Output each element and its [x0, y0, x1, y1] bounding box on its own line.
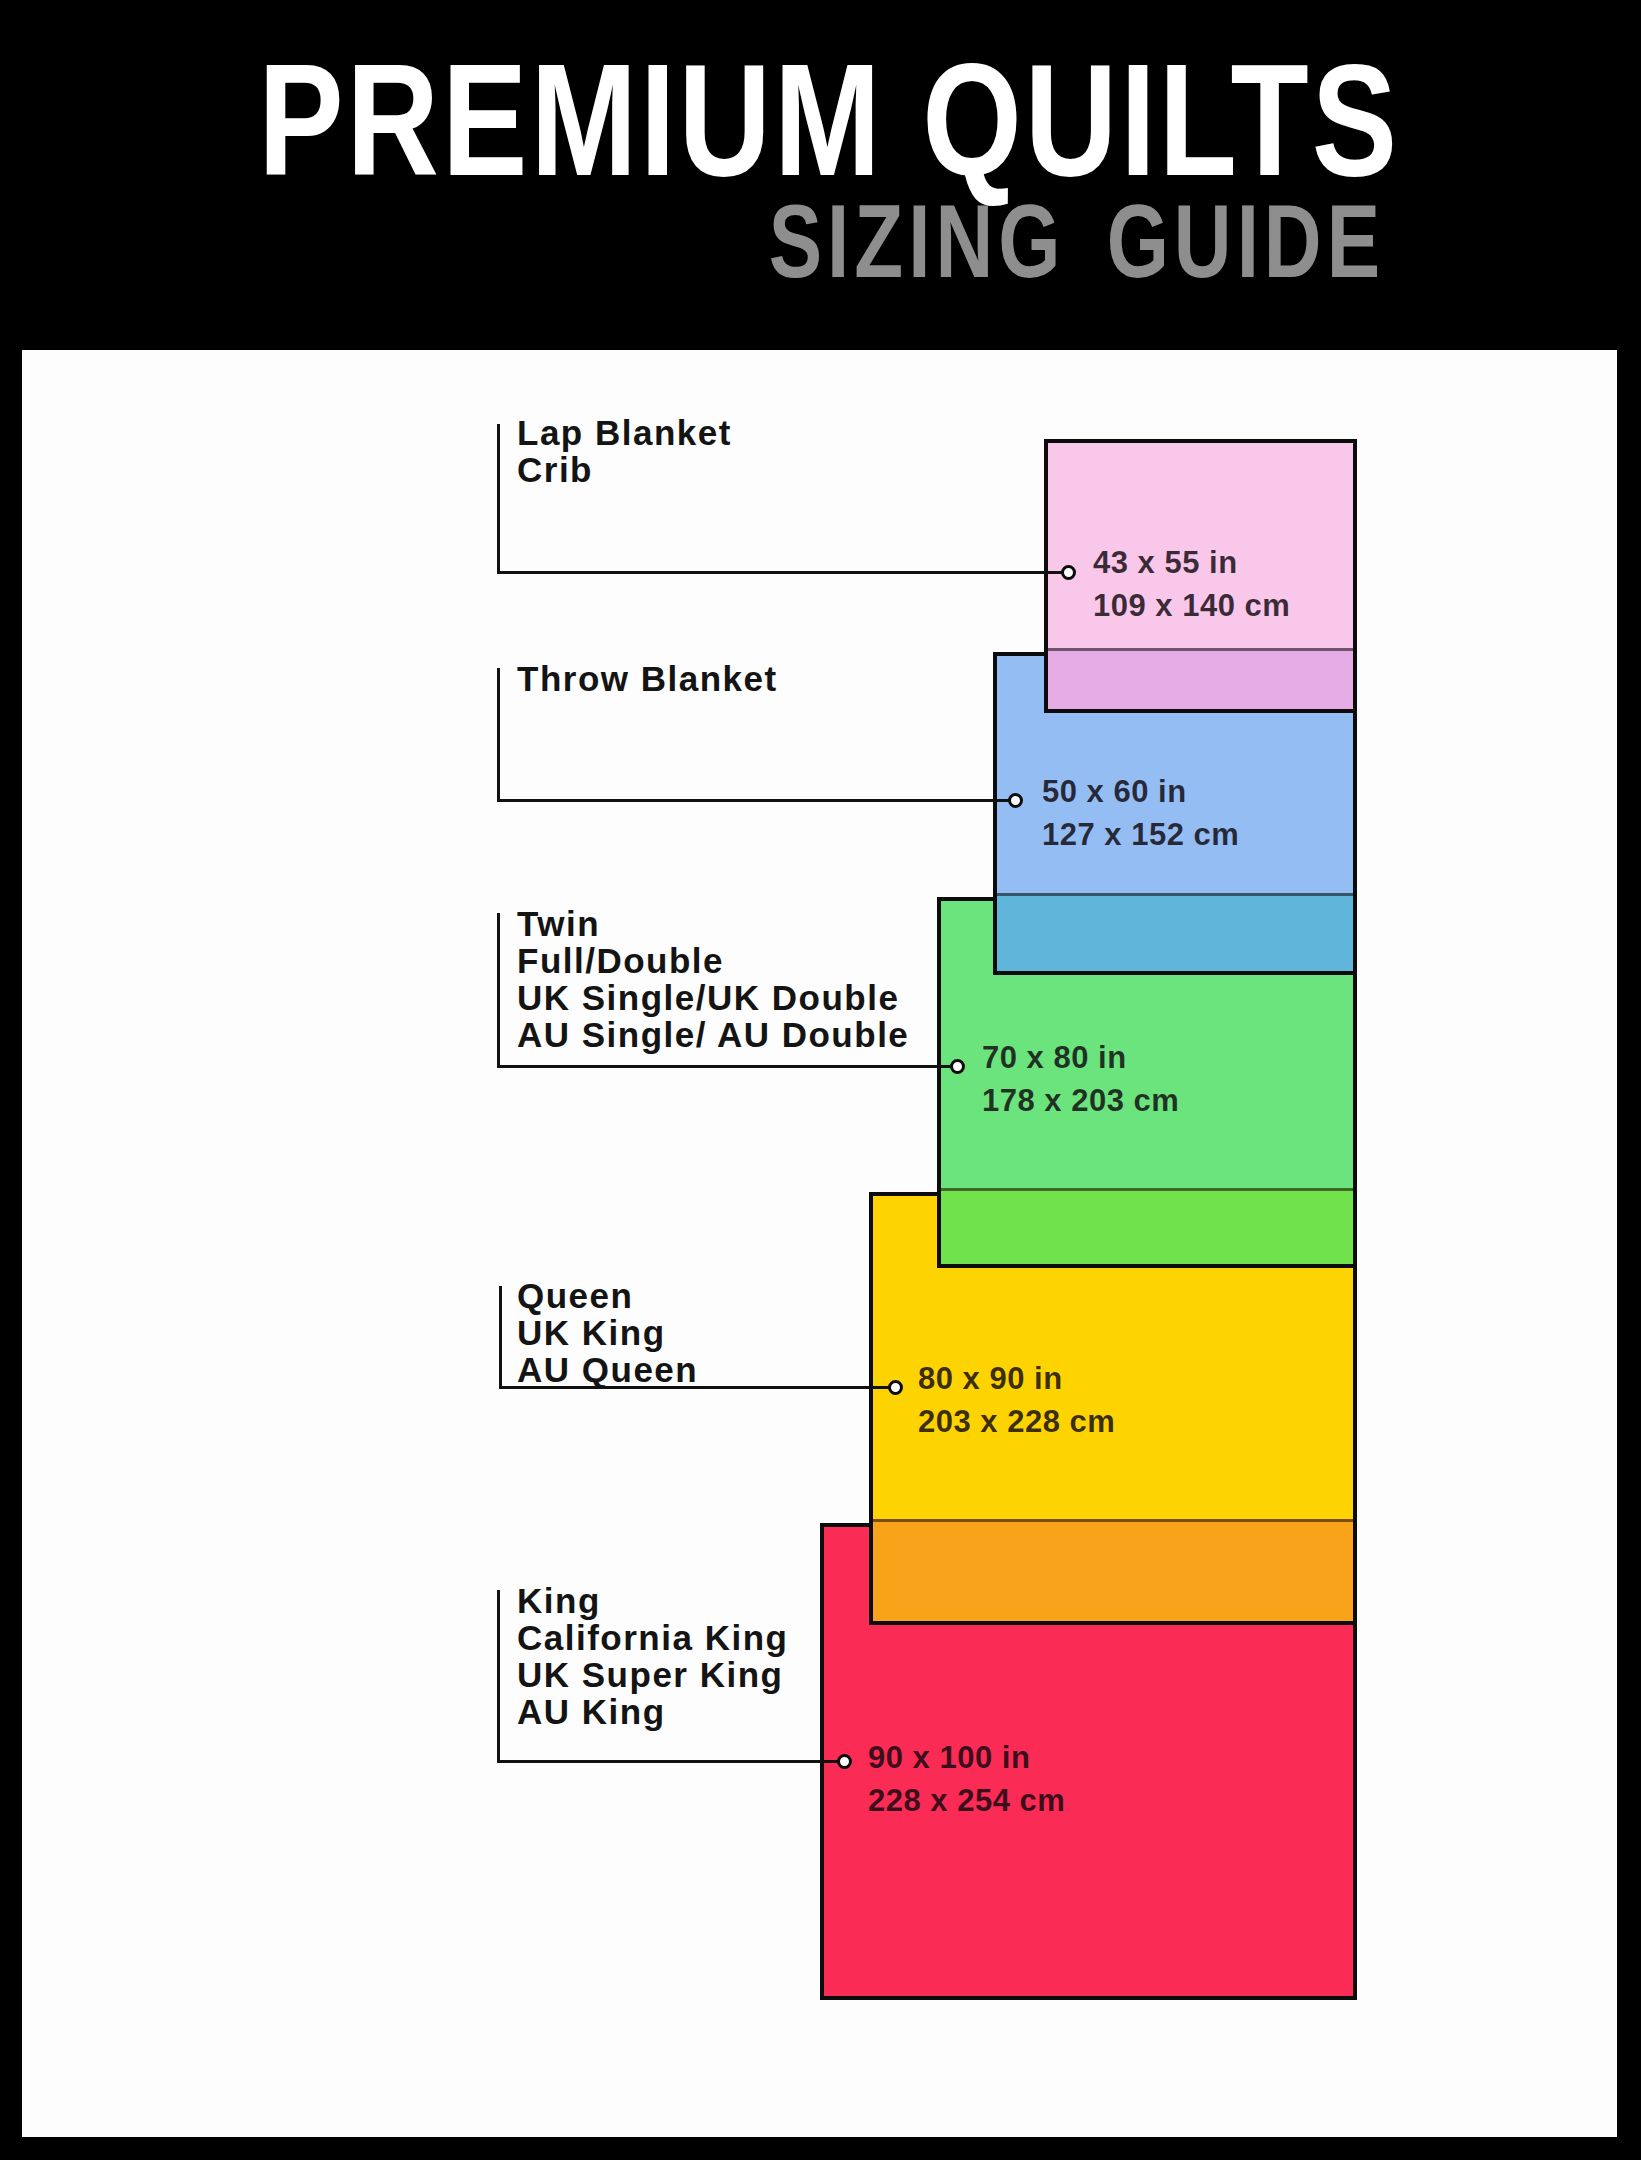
dims-queen-cm: 203 x 228 cm — [918, 1400, 1115, 1443]
page-title: PREMIUM QUILTS — [258, 40, 1400, 200]
dims-king-cm: 228 x 254 cm — [868, 1779, 1065, 1822]
callout-line-throw-v — [497, 668, 500, 802]
dims-twin-in: 70 x 80 in — [982, 1036, 1179, 1079]
callout-line-lap-crib-h — [497, 571, 1063, 574]
overlap-band-queen-over-king — [873, 1519, 1353, 1621]
callout-line-lap-crib-v — [497, 424, 500, 574]
overlap-band-throw-over-twin — [997, 893, 1353, 971]
callout-dot-throw — [1008, 793, 1023, 808]
dims-king-in: 90 x 100 in — [868, 1736, 1065, 1779]
dims-throw: 50 x 60 in 127 x 152 cm — [1042, 770, 1239, 856]
label-throw: Throw Blanket — [517, 660, 778, 697]
callout-line-twin-v — [497, 913, 500, 1068]
callout-dot-twin — [950, 1059, 965, 1074]
dims-king: 90 x 100 in 228 x 254 cm — [868, 1736, 1065, 1822]
dims-queen-in: 80 x 90 in — [918, 1357, 1115, 1400]
overlap-band-twin-over-queen — [941, 1188, 1353, 1264]
page-subtitle: SIZING GUIDE — [769, 190, 1385, 294]
dims-lap-crib-in: 43 x 55 in — [1093, 541, 1290, 584]
dims-throw-cm: 127 x 152 cm — [1042, 813, 1239, 856]
label-king: KingCalifornia KingUK Super KingAU King — [517, 1582, 788, 1730]
dims-lap-crib: 43 x 55 in 109 x 140 cm — [1093, 541, 1290, 627]
callout-dot-queen — [888, 1380, 903, 1395]
label-twin: TwinFull/DoubleUK Single/UK DoubleAU Sin… — [517, 905, 909, 1053]
callout-line-throw-h — [497, 799, 1010, 802]
callout-line-queen-h — [499, 1386, 890, 1389]
dims-lap-crib-cm: 109 x 140 cm — [1093, 584, 1290, 627]
dims-twin: 70 x 80 in 178 x 203 cm — [982, 1036, 1179, 1122]
dims-queen: 80 x 90 in 203 x 228 cm — [918, 1357, 1115, 1443]
infographic-canvas: PREMIUM QUILTS SIZING GUIDE 43 x 55 in 1… — [0, 0, 1641, 2160]
overlap-band-lap-over-throw — [1048, 648, 1353, 709]
callout-dot-lap-crib — [1061, 565, 1076, 580]
callout-line-twin-h — [497, 1065, 952, 1068]
callout-line-king-h — [497, 1760, 839, 1763]
label-queen: QueenUK KingAU Queen — [517, 1277, 698, 1388]
callout-dot-king — [837, 1754, 852, 1769]
dims-twin-cm: 178 x 203 cm — [982, 1079, 1179, 1122]
callout-line-queen-v — [499, 1286, 502, 1389]
dims-throw-in: 50 x 60 in — [1042, 770, 1239, 813]
label-lap-crib: Lap BlanketCrib — [517, 414, 732, 488]
callout-line-king-v — [497, 1590, 500, 1763]
